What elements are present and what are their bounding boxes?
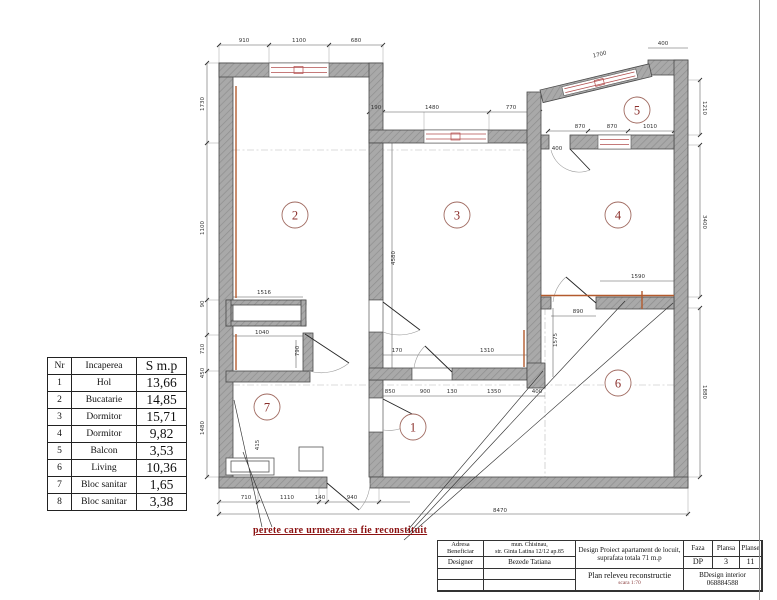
designer-label-cell: Designer	[438, 557, 484, 569]
dimension-label: 1350	[487, 389, 501, 395]
dimension-label: 1480	[425, 105, 439, 111]
dimension-label: 1480	[200, 421, 206, 435]
table-cell: Living	[72, 460, 137, 477]
table-cell: Hol	[72, 375, 137, 392]
empty-cell-3	[438, 580, 484, 591]
doors-layer	[305, 149, 596, 510]
table-cell: Bloc sanitar	[72, 477, 137, 494]
table-cell: 1	[48, 375, 72, 392]
table-cell: 8	[48, 494, 72, 511]
wall-hall-top-right	[452, 368, 527, 380]
wc-fixture	[299, 447, 323, 471]
table-cell: 1,65	[137, 477, 187, 494]
dimension-label: 400	[532, 389, 543, 395]
wall-hall-top-left	[369, 368, 412, 380]
dimension-label: 890	[573, 309, 584, 315]
wall-bottom-right	[370, 477, 688, 488]
table-row: 6Living10,36	[48, 460, 187, 477]
table-cell: 9,82	[137, 426, 187, 443]
door-room6	[553, 277, 596, 303]
niche-top	[226, 300, 306, 305]
table-row: 8Bloc sanitar3,38	[48, 494, 187, 511]
table-cell: Dormitor	[72, 426, 137, 443]
niche-bottom	[226, 321, 306, 326]
faza-value: DP	[684, 557, 713, 569]
table-cell: 3,38	[137, 494, 187, 511]
dimension-label: 770	[506, 105, 517, 111]
dimension-label: 1575	[553, 333, 559, 347]
dimension-label: 130	[447, 389, 458, 395]
designer-name-cell: Bezede Tatiana	[484, 557, 576, 569]
room-marker-number: 6	[615, 377, 621, 391]
room-marker-number: 3	[454, 209, 460, 223]
table-row: 7Bloc sanitar1,65	[48, 477, 187, 494]
table-cell: Dormitor	[72, 409, 137, 426]
table-cell: 14,85	[137, 392, 187, 409]
dimension-label: 170	[392, 348, 403, 354]
drawing-scale: scara 1:70	[618, 581, 640, 587]
door-kitchen	[383, 302, 420, 335]
dimension-label: 3400	[701, 215, 707, 229]
dimension-label: 1590	[631, 274, 645, 280]
dimension-label: 1700	[592, 50, 607, 59]
window-kitchen	[269, 63, 329, 77]
address-labels-cell: Adresa Beneficiar	[438, 541, 484, 557]
room-marker-number: 1	[410, 421, 416, 435]
construction-lines	[233, 150, 674, 477]
table-row: 2Bucatarie14,85	[48, 392, 187, 409]
windows-layer	[269, 63, 631, 432]
dimension-label: 1100	[292, 38, 306, 44]
dimension-label: 8470	[493, 508, 507, 514]
address-value-cell: mun. Chisinau, str. Ginta Latina 12/12 a…	[484, 541, 576, 557]
dimension-label: 415	[255, 439, 261, 450]
dimension-label: 400	[658, 41, 669, 47]
dimension-label: 1730	[200, 97, 206, 111]
table-cell: 3,53	[137, 443, 187, 460]
door-room4	[551, 149, 590, 172]
dimension-label: 1010	[643, 124, 657, 130]
studio-cell: BDesign interior 068884588	[684, 569, 762, 591]
dimension-label: 790	[295, 345, 301, 356]
wall-bottom-left	[219, 477, 327, 488]
walls-layer	[219, 60, 688, 488]
dimension-label: 850	[385, 389, 396, 395]
table-cell: 5	[48, 443, 72, 460]
table-row: 5Balcon3,53	[48, 443, 187, 460]
drawing-title-cell: Plan releveu reconstructie scara 1:70	[576, 569, 684, 591]
wall-room4-top-stub	[541, 135, 549, 149]
room-marker-number: 4	[615, 209, 622, 223]
col-header-area: S m.p	[137, 358, 187, 375]
dimension-label: 140	[315, 495, 326, 501]
dimension-label: 870	[607, 124, 618, 130]
table-row: 3Dormitor15,71	[48, 409, 187, 426]
dimension-label: 1310	[480, 348, 494, 354]
empty-cell-1	[438, 569, 484, 580]
rooms-table: Nr Incaperea S m.p 1Hol13,662Bucatarie14…	[47, 357, 187, 511]
table-cell: 13,66	[137, 375, 187, 392]
dimension-label: 900	[420, 389, 431, 395]
niche-left	[226, 300, 231, 326]
table-row: 1Hol13,66	[48, 375, 187, 392]
wall-left	[219, 63, 233, 488]
table-cell: 15,71	[137, 409, 187, 426]
wall-right	[674, 60, 688, 488]
dimension-label: 710	[200, 343, 206, 354]
dimension-label: 1100	[200, 221, 206, 235]
dimension-label: 910	[239, 38, 250, 44]
table-cell: Balcon	[72, 443, 137, 460]
dimension-label: 1110	[280, 495, 294, 501]
reconstruct-note: perete care urmeaza sa fie reconstituit	[253, 525, 427, 536]
wall-corner-block	[527, 363, 545, 388]
note-leader-lines	[234, 301, 673, 540]
address-line2: str. Ginta Latina 12/12 ap.85	[495, 549, 564, 555]
dimension-label: 400	[552, 146, 563, 152]
wall-divider-7b	[369, 432, 383, 477]
niche-right	[301, 300, 306, 326]
dimension-label: 680	[351, 38, 362, 44]
dimension-label: 870	[575, 124, 586, 130]
faza-header: Faza	[684, 541, 713, 557]
project-cell: Design Proiect apartament de locuit, sup…	[576, 541, 684, 569]
dimension-label: 1210	[701, 101, 707, 115]
dimension-label: 1880	[701, 385, 707, 399]
room-marker-number: 5	[634, 104, 640, 118]
wall-room4-6-stub	[541, 297, 551, 309]
door-frame-kitchen	[369, 300, 383, 332]
room-marker-number: 7	[264, 401, 270, 415]
dimension-label: 710	[241, 495, 252, 501]
window-room4	[598, 135, 631, 149]
plansa-value: 3	[713, 557, 740, 569]
window-room3	[424, 130, 488, 143]
project-line2: suprafata totala 71 m.p	[597, 555, 661, 562]
col-header-name: Incaperea	[72, 358, 137, 375]
plansa-header: Plansa	[713, 541, 740, 557]
studio-phone: 068884588	[707, 580, 739, 587]
table-cell: 4	[48, 426, 72, 443]
dimension-label: 1516	[257, 290, 271, 296]
title-block: Adresa Beneficiar mun. Chisinau, str. Gi…	[437, 540, 763, 592]
room-marker-number: 2	[292, 209, 298, 223]
door-frame-room3	[412, 368, 452, 380]
fixtures-layer	[226, 447, 323, 475]
beneficiar-label: Beneficiar	[447, 549, 474, 556]
wall-room7-top	[226, 371, 310, 382]
col-header-nr: Nr	[48, 358, 72, 375]
empty-cell-2	[484, 569, 576, 580]
table-cell: 6	[48, 460, 72, 477]
wall-divider-3-4	[527, 92, 541, 380]
wall-divider-2-3	[369, 143, 383, 300]
table-cell: 10,36	[137, 460, 187, 477]
dimension-label: 4580	[391, 251, 397, 265]
rooms-table-header: Nr Incaperea S m.p	[48, 358, 187, 375]
dimension-label: 190	[371, 105, 382, 111]
empty-cell-4	[484, 580, 576, 591]
table-cell: 2	[48, 392, 72, 409]
dimension-label: 1040	[255, 330, 269, 336]
floor-plan-sheet: 9101100680190148077087087010104001700121…	[0, 0, 777, 600]
dimension-label: 450	[200, 367, 206, 378]
door-frame-room7	[369, 398, 383, 432]
table-cell: 7	[48, 477, 72, 494]
table-row: 4Dormitor9,82	[48, 426, 187, 443]
dimension-label: 940	[347, 495, 358, 501]
sheet-border	[759, 0, 760, 600]
wall-room4-6	[596, 297, 674, 309]
table-cell: Bloc sanitar	[72, 494, 137, 511]
table-cell: Bucatarie	[72, 392, 137, 409]
table-cell: 3	[48, 409, 72, 426]
wall-divider-7a	[369, 380, 383, 398]
dimension-label: 90	[200, 300, 206, 307]
